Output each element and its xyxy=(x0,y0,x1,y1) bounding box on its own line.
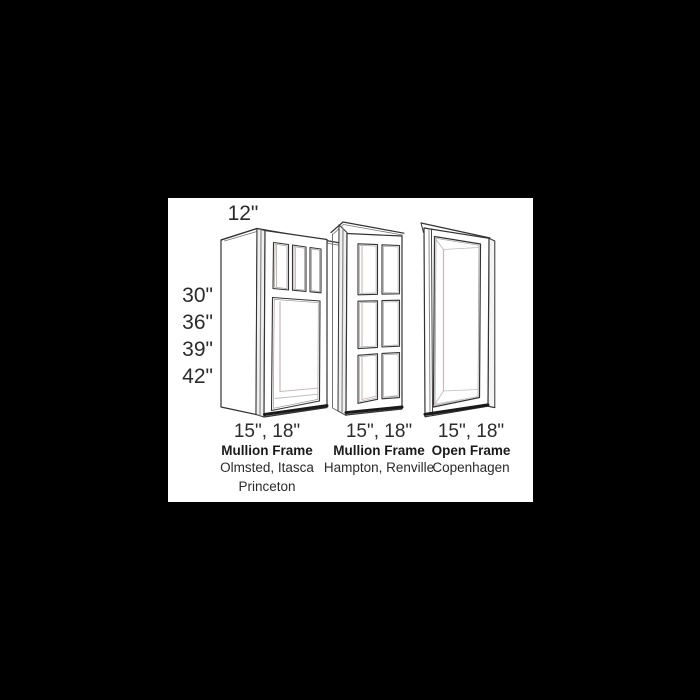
depth-dimension-label: 12" xyxy=(208,203,278,225)
page-background: 12" 30" 36" 39" 42" 15", 18" Mullion Fra… xyxy=(0,0,700,700)
height-dimension-label: 30" xyxy=(168,282,213,309)
width-dimension-label: 15", 18" xyxy=(396,422,546,442)
height-dimension-label: 39" xyxy=(168,336,213,363)
cabinet-caption-right: 15", 18" Open Frame Copenhagen xyxy=(396,422,546,478)
cabinet-middle-mullion-6-lite xyxy=(331,222,404,416)
cabinet-diagram-panel: 12" 30" 36" 39" 42" 15", 18" Mullion Fra… xyxy=(168,198,533,502)
cabinet-left-mullion-3-lite xyxy=(221,229,346,418)
cabinet-right-open-frame xyxy=(421,223,495,417)
height-dimension-label: 36" xyxy=(168,309,213,336)
style-names-label: Princeton xyxy=(192,478,342,497)
style-names-label: Copenhagen xyxy=(396,459,546,478)
height-dimension-label: 42" xyxy=(168,363,213,390)
frame-type-label: Open Frame xyxy=(396,442,546,459)
height-dimensions: 30" 36" 39" 42" xyxy=(168,282,213,390)
